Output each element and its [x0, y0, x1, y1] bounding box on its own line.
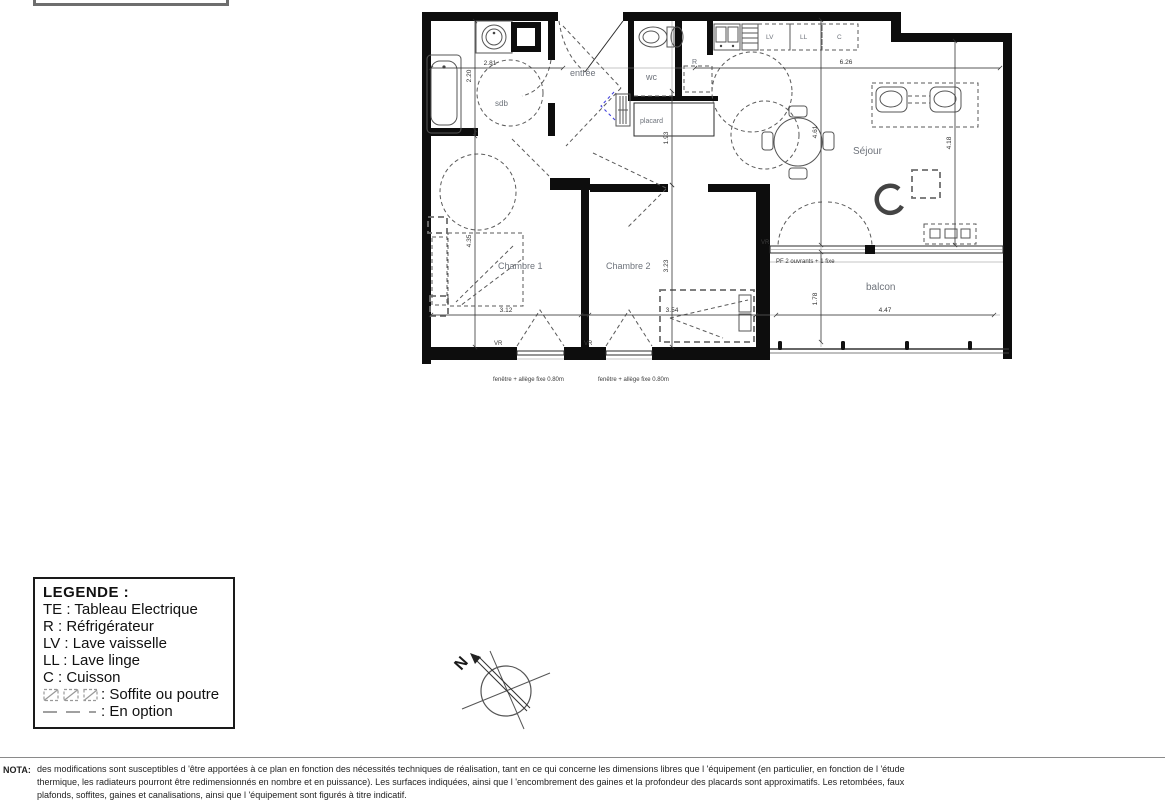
nota-line-2: thermique, les radiateurs pourront être … [0, 776, 1165, 789]
label-vr-3: VR [761, 240, 770, 246]
label-sejour: Séjour [853, 146, 883, 157]
floor-plan-drawing: sdb entrée wc placard Séjour Chambre 1 C… [418, 8, 1018, 398]
turning-circle-kitchen [712, 52, 792, 132]
needle-tip [470, 653, 481, 664]
legend-box: LEGENDE : TE : Tableau Electrique R : Ré… [33, 577, 235, 729]
cutoff-title-box [33, 0, 229, 6]
legend-item-te: TE : Tableau Electrique [43, 601, 225, 618]
bedroom1-furniture [428, 139, 549, 316]
label-placard: placard [640, 118, 663, 125]
nota-line-1: des modifications sont susceptibles d 'ê… [0, 763, 1165, 776]
north-compass: N [450, 645, 554, 745]
legend-item-soffite: : Soffite ou poutre [43, 686, 225, 703]
dim-hall-h: 1.93 [663, 131, 670, 144]
dimension-lines [431, 20, 1000, 347]
dim-balcon-h: 1.78 [812, 292, 819, 305]
option-square [912, 170, 940, 198]
nota-block: NOTA: des modifications sont susceptible… [0, 757, 1165, 800]
legend-soffite-label: : Soffite ou poutre [101, 686, 219, 703]
label-window-note-2: fenêtre + allège fixe 0.80m [598, 377, 669, 383]
label-vr-2: VR [584, 341, 593, 347]
label-c: C [837, 34, 842, 41]
legend-title: LEGENDE : [43, 584, 225, 601]
sofa-group [872, 83, 978, 127]
turning-circle-ch1 [440, 154, 516, 230]
wardrobe [432, 237, 447, 305]
sideboard [924, 224, 976, 244]
bathroom-fixtures [427, 21, 551, 133]
dim-chambre1-h: 4.35 [466, 234, 473, 247]
legend-item-ll: LL : Lave linge [43, 652, 225, 669]
dim-sejour-w: 6.26 [840, 59, 853, 66]
label-wc: wc [645, 72, 657, 82]
entrance-door-leaf [585, 21, 623, 72]
option-symbol [43, 708, 99, 716]
floor-plan-page: sdb entrée wc placard Séjour Chambre 1 C… [0, 0, 1165, 800]
label-ll: LL [800, 34, 808, 41]
label-lv: LV [766, 34, 774, 41]
dim-chambre1-w: 3.12 [500, 307, 513, 314]
legend-item-r: R : Réfrigérateur [43, 618, 225, 635]
legend-option-label: : En option [101, 703, 173, 720]
label-window-note-1: fenêtre + allège fixe 0.80m [493, 377, 564, 383]
fridge-slot [684, 66, 712, 92]
label-chambre1: Chambre 1 [498, 261, 543, 271]
inner-walls [431, 12, 770, 347]
label-chambre2: Chambre 2 [606, 261, 651, 271]
label-balcon: balcon [866, 282, 895, 293]
label-vr-1: VR [494, 341, 503, 347]
dim-chambre2-w: 3.54 [666, 307, 679, 314]
blue-option-door [601, 92, 615, 120]
entry-hall [559, 21, 666, 188]
lv-slot [758, 24, 790, 50]
turning-circle-sdb [477, 60, 543, 126]
armchair [877, 186, 902, 213]
soffite-symbol [43, 688, 99, 702]
label-entree: entrée [570, 68, 596, 78]
dim-chambre2-h: 3.23 [663, 259, 670, 272]
washbasin-counter [476, 21, 512, 53]
label-sdb: sdb [495, 99, 508, 108]
north-label: N [451, 654, 471, 674]
label-r: R [692, 59, 697, 66]
dim-balcon-w: 4.47 [879, 307, 892, 314]
kitchen-sink [714, 24, 740, 50]
legend-item-lv: LV : Lave vaisselle [43, 635, 225, 652]
dim-sdb-w: 2.81 [484, 60, 497, 67]
duct [514, 25, 538, 49]
dim-sejour-mid-h: 4.61 [812, 125, 819, 138]
nota-label: NOTA: [3, 764, 31, 777]
dim-sejour-h: 4.18 [946, 136, 953, 149]
legend-item-c: C : Cuisson [43, 669, 225, 686]
balcony-railing [770, 341, 1009, 353]
dim-sdb-h: 2.20 [466, 69, 473, 82]
legend-item-option: : En option [43, 703, 225, 720]
label-pf: PF 2 ouvrants + 1 fixe [776, 259, 835, 265]
nota-line-3: plafonds, soffites, gaines et canalisati… [0, 789, 1165, 800]
bed2-option [660, 290, 754, 342]
